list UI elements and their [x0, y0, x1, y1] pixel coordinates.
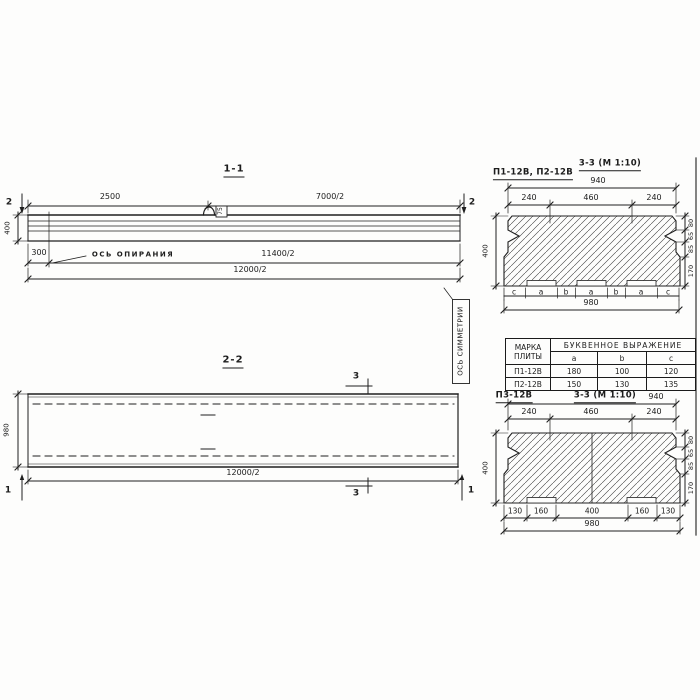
dim-7000-2: 7000/2 — [316, 193, 344, 201]
row2-a: 150 — [551, 378, 598, 391]
dim-980-top: 980 — [583, 299, 598, 307]
letter-a-3: a — [639, 288, 644, 296]
dim-240-right-bottom: 240 — [646, 408, 661, 416]
slab-marks-top: П1-12В, П2-12В — [493, 168, 573, 180]
dim-160-right: 160 — [635, 507, 649, 515]
blueprint-sheet: 1-1 2500 7000/2 2 2 400 75 300 ОСЬ ОПИРА… — [0, 0, 700, 700]
symmetry-axis-label: ОСЬ СИММЕТРИИ — [458, 306, 465, 376]
dim-12000-2-elevation: 12000/2 — [233, 266, 266, 274]
dim-2500: 2500 — [100, 193, 120, 201]
section-1-1-title: 1-1 — [223, 165, 244, 178]
loop-tag: 75 — [218, 207, 224, 215]
table-col-a: a — [551, 352, 598, 365]
cut-mark-2-right: 2 — [469, 199, 475, 208]
dim-400-bottom-section: 400 — [483, 461, 490, 474]
dim-980-plan: 980 — [4, 423, 11, 436]
table-col-b: b — [598, 352, 647, 365]
section-3-3-title-top: 3-3 (М 1:10) — [579, 159, 641, 171]
dim-240-left-bottom: 240 — [521, 408, 536, 416]
dim-300: 300 — [31, 249, 46, 257]
table-row: П1-12В 180 100 120 — [506, 365, 696, 378]
dim-460-bottom: 460 — [583, 408, 598, 416]
table-row: П2-12В 150 130 135 — [506, 378, 696, 391]
slab-mark-bottom: П3-12В — [496, 391, 533, 403]
dim-400-center: 400 — [585, 507, 599, 515]
letter-c-1: c — [512, 288, 516, 296]
row2-b: 130 — [598, 378, 647, 391]
table-col-c: c — [647, 352, 696, 365]
dim-940-bottom: 940 — [648, 393, 663, 401]
section-3-3-title-bottom: 3-3 (М 1:10) — [574, 391, 636, 403]
row1-mark: П1-12В — [506, 365, 551, 378]
section-2-2-title: 2-2 — [222, 356, 243, 369]
cut-mark-1-left: 1 — [5, 487, 11, 496]
dim-85-bottom: 85 — [688, 462, 695, 470]
dim-940-top: 940 — [590, 177, 605, 185]
letter-b-2: b — [614, 288, 619, 296]
dim-170-bottom: 170 — [688, 482, 695, 494]
dim-170-top: 170 — [688, 265, 695, 277]
dim-11400-2: 11400/2 — [261, 250, 294, 258]
letter-values-table: МАРКА ПЛИТЫ БУКВЕННОЕ ВЫРАЖЕНИЕ a b c П1… — [505, 338, 696, 391]
letter-b-1: b — [564, 288, 569, 296]
letter-a-2: a — [589, 288, 594, 296]
dim-240-right-top: 240 — [646, 194, 661, 202]
dim-80-bottom: 80 — [688, 436, 695, 444]
dim-400-elevation: 400 — [5, 221, 12, 234]
row1-b: 100 — [598, 365, 647, 378]
bearing-axis-label: ОСЬ ОПИРАНИЯ — [92, 252, 174, 259]
dim-130-right: 130 — [661, 507, 675, 515]
row1-c: 120 — [647, 365, 696, 378]
dim-12000-2-plan: 12000/2 — [226, 469, 259, 477]
table-group-header: БУКВЕННОЕ ВЫРАЖЕНИЕ — [551, 339, 696, 352]
cut-mark-2-left: 2 — [6, 199, 12, 208]
letter-a-1: a — [539, 288, 544, 296]
row1-a: 180 — [551, 365, 598, 378]
cut-mark-3-bottom: 3 — [353, 490, 359, 499]
dim-65-top: 65 — [688, 232, 695, 240]
dim-400-top-section: 400 — [483, 244, 490, 257]
letter-c-2: c — [666, 288, 670, 296]
row2-mark: П2-12В — [506, 378, 551, 391]
dim-85-top: 85 — [688, 245, 695, 253]
dim-160-left: 160 — [534, 507, 548, 515]
cut-mark-3-top: 3 — [353, 373, 359, 382]
dim-65-bottom: 65 — [688, 449, 695, 457]
table-col1-header: МАРКА ПЛИТЫ — [506, 339, 551, 365]
dim-130-left: 130 — [508, 507, 522, 515]
dim-80-top: 80 — [688, 219, 695, 227]
cut-mark-1-right: 1 — [468, 487, 474, 496]
row2-c: 135 — [647, 378, 696, 391]
dim-980-bottom: 980 — [584, 520, 599, 528]
dim-240-left-top: 240 — [521, 194, 536, 202]
dim-460-top: 460 — [583, 194, 598, 202]
